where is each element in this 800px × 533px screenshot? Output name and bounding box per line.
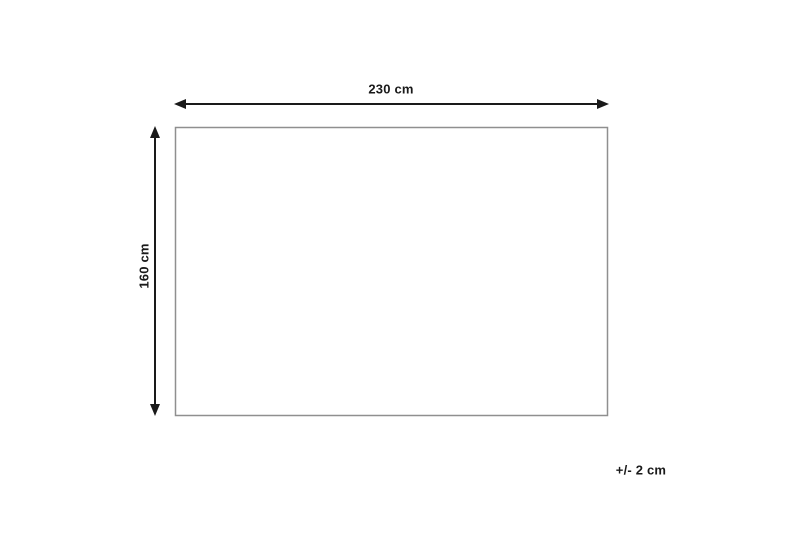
- product-outline-rect: [176, 128, 608, 416]
- height-arrowhead-top-icon: [150, 126, 160, 138]
- height-arrowhead-bottom-icon: [150, 404, 160, 416]
- tolerance-label: +/- 2 cm: [616, 463, 666, 478]
- diagram-graphics: [0, 0, 800, 533]
- height-arrow: [150, 126, 160, 416]
- width-arrowhead-left-icon: [174, 99, 186, 109]
- width-dimension-label: 230 cm: [368, 82, 413, 97]
- width-arrowhead-right-icon: [597, 99, 609, 109]
- width-arrow: [174, 99, 609, 109]
- height-dimension-label: 160 cm: [137, 243, 152, 288]
- dimension-diagram: 230 cm 160 cm +/- 2 cm: [0, 0, 800, 533]
